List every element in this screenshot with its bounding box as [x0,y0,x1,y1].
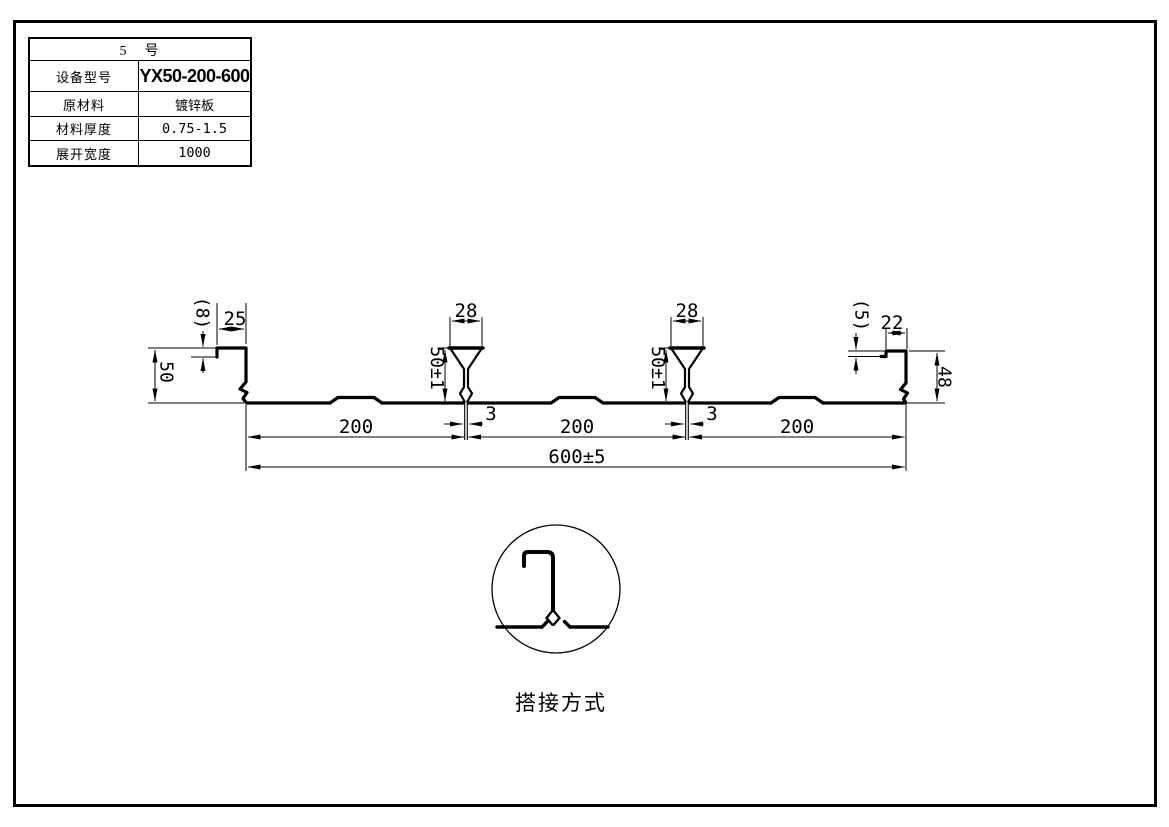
dim-right-hook-height: (5) [851,299,872,332]
detail-circle [492,525,620,653]
dim-rib1-seam-gap: 3 [485,403,496,425]
dim-overall-width: 600±5 [548,446,605,468]
detail-base-left [497,622,548,628]
dim-rib1-top-width: 28 [455,300,478,322]
detail-diamond [547,610,560,626]
dim-rib2-height: 50±1 [647,346,668,389]
dim-rib1-height: 50±1 [426,346,447,389]
dim-left-height: 50 [156,361,177,383]
dim-right-lip-width: 22 [881,312,904,334]
dim-pitch2: 200 [560,416,594,438]
dim-left-lip-width: 25 [224,308,247,330]
dim-pitch1: 200 [339,416,373,438]
dim-right-height: 48 [934,366,955,388]
dimensions: 25 (8) 50 28 50±1 3 [148,297,955,471]
rib-1 [449,348,483,440]
dim-left-hook-height: (8) [192,297,213,330]
detail-hook [524,552,553,610]
profile-base3-and-right-edge [690,351,908,403]
detail-base-right [565,622,609,628]
drawing-sheet: 5 号 设备型号 YX50-200-600 原材料 镀锌板 材料厚度 0.75-… [0,0,1169,827]
dim-rib2-seam-gap: 3 [706,403,717,425]
rib-2 [670,348,704,440]
profile-drawing: 25 (8) 50 28 50±1 3 [0,0,1169,827]
profile-base2 [469,398,685,404]
dim-pitch3: 200 [780,416,814,438]
lap-joint-detail: 搭接方式 [492,525,620,715]
dim-rib2-top-width: 28 [676,300,699,322]
detail-caption: 搭接方式 [515,691,607,715]
